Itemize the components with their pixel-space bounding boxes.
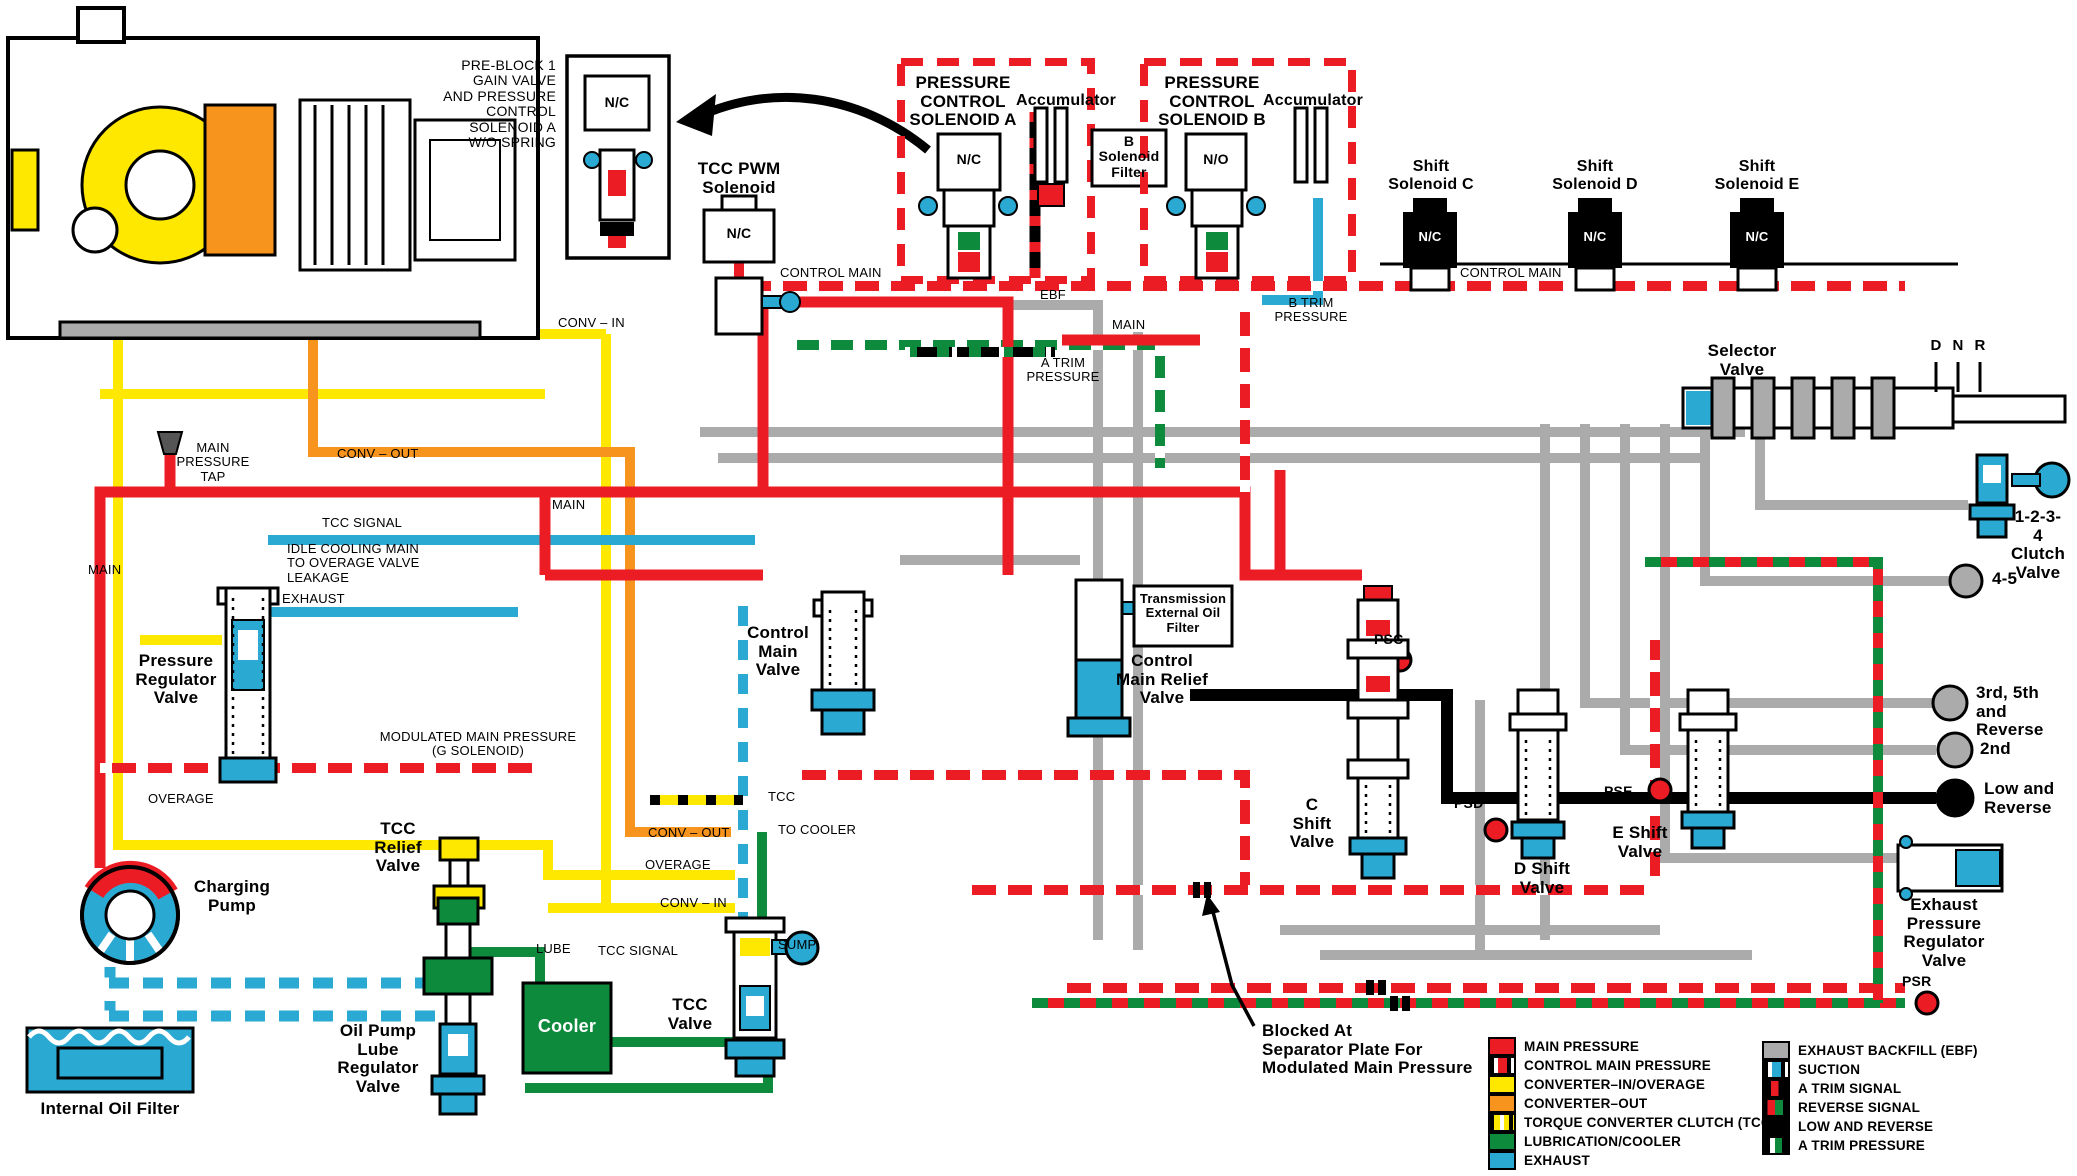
tcc-relief-valve-label: TCC Relief Valve xyxy=(374,820,422,876)
main-label-top: MAIN xyxy=(552,498,585,512)
control-main-label-right: CONTROL MAIN xyxy=(1460,266,1562,280)
legend-item-suction: SUCTION xyxy=(1762,1061,1978,1077)
shift-solenoid-d-label: Shift Solenoid D xyxy=(1552,158,1638,193)
cooler-label: Cooler xyxy=(538,1017,596,1037)
lube-label: LUBE xyxy=(536,942,571,956)
exhaust-swatch xyxy=(1488,1151,1516,1170)
clutch-3rd-5th-reverse-port xyxy=(1933,686,1967,720)
shift-solenoid-c-label: Shift Solenoid C xyxy=(1388,158,1474,193)
a-trim-signal-swatch xyxy=(1762,1079,1790,1098)
reverse-signal-swatch xyxy=(1762,1098,1790,1117)
conv-out-label-mid: CONV – OUT xyxy=(648,826,729,840)
charging-pump xyxy=(82,867,178,963)
third-fifth-reverse-label: 3rd, 5th and Reverse xyxy=(1976,684,2077,740)
pre-block-nc-label: N/C xyxy=(605,95,630,110)
legend-label: EXHAUST xyxy=(1524,1153,1590,1168)
conv-in-label-top: CONV – IN xyxy=(558,316,625,330)
e-shift-valve xyxy=(1680,690,1736,848)
pcs-a-nc-label: N/C xyxy=(957,152,982,167)
a-trim-pressure-swatch xyxy=(1762,1136,1790,1155)
tcc-signal-label-mid: TCC SIGNAL xyxy=(598,944,678,958)
callout-arrow xyxy=(676,94,928,150)
label-4-5: 4-5 xyxy=(1992,570,2017,589)
shift-solenoid-e-label: Shift Solenoid E xyxy=(1715,158,1800,193)
b-solenoid-filter-label: B Solenoid Filter xyxy=(1099,134,1160,180)
clutch-2nd-port xyxy=(1938,733,1972,767)
legend-item-converter-out: CONVERTER–OUT xyxy=(1488,1095,1776,1111)
legend-item-converter-in-overage: CONVERTER–IN/OVERAGE xyxy=(1488,1076,1776,1092)
shift-solenoid-e-nc: N/C xyxy=(1746,230,1769,244)
legend-item-exhaust-backfill: EXHAUST BACKFILL (EBF) xyxy=(1762,1042,1978,1058)
conv-out-label-left: CONV – OUT xyxy=(337,447,418,461)
legend-item-a-trim-pressure: A TRIM PRESSURE xyxy=(1762,1137,1978,1153)
legend-item-low-and-reverse: LOW AND REVERSE xyxy=(1762,1118,1978,1134)
legend-label: REVERSE SIGNAL xyxy=(1798,1100,1920,1115)
selector-r-label: R xyxy=(1974,338,1985,355)
legend-item-lubrication-cooler: LUBRICATION/COOLER xyxy=(1488,1133,1776,1149)
pre-block-inset xyxy=(567,56,669,258)
transmission-external-oil-filter-label: Transmission External Oil Filter xyxy=(1140,592,1226,635)
internal-oil-filter-label: Internal Oil Filter xyxy=(41,1100,180,1119)
suction-swatch xyxy=(1762,1060,1790,1079)
legend-label: EXHAUST BACKFILL (EBF) xyxy=(1798,1043,1978,1058)
c-shift-valve xyxy=(1348,586,1408,878)
legend-item-a-trim-signal: A TRIM SIGNAL xyxy=(1762,1080,1978,1096)
modulated-main-label: MODULATED MAIN PRESSURE (G SOLENOID) xyxy=(380,730,577,759)
shift-solenoid-d-nc: N/C xyxy=(1584,230,1607,244)
psd-label: PSD xyxy=(1454,796,1483,811)
a-trim-pressure-label: A TRIM PRESSURE xyxy=(1026,356,1099,385)
overage-label-mid: OVERAGE xyxy=(645,858,711,872)
torque-converter-clutch-swatch xyxy=(1488,1113,1516,1132)
legend-item-torque-converter-clutch: TORQUE CONVERTER CLUTCH (TCC) xyxy=(1488,1114,1776,1130)
legend-label: A TRIM SIGNAL xyxy=(1798,1081,1901,1096)
pse-switch xyxy=(1649,779,1671,801)
main-pressure-tap-label: MAIN PRESSURE TAP xyxy=(176,441,249,484)
exhaust-pressure-regulator-label: Exhaust Pressure Regulator Valve xyxy=(1903,896,1984,971)
legend-label: CONVERTER–OUT xyxy=(1524,1096,1647,1111)
b-trim-pressure-label: B TRIM PRESSURE xyxy=(1274,296,1347,325)
shift-solenoid-c-nc: N/C xyxy=(1419,230,1442,244)
lubrication-cooler-swatch xyxy=(1488,1132,1516,1151)
control-main-valve-label: Control Main Valve xyxy=(747,624,809,680)
exhaust-label: EXHAUST xyxy=(282,592,345,606)
main-label-mid: MAIN xyxy=(1112,318,1145,332)
legend-column-right: EXHAUST BACKFILL (EBF)SUCTIONA TRIM SIGN… xyxy=(1762,1042,1978,1153)
legend-column-left: MAIN PRESSURECONTROL MAIN PRESSURECONVER… xyxy=(1488,1038,1776,1168)
clutch-low-reverse-port xyxy=(1937,780,1973,816)
legend-item-control-main-pressure: CONTROL MAIN PRESSURE xyxy=(1488,1057,1776,1073)
to-cooler-label: TO COOLER xyxy=(778,823,856,837)
idle-cooling-note: IDLE COOLING MAIN TO OVERAGE VALVE LEAKA… xyxy=(287,542,420,585)
pressure-control-solenoid-b-label: PRESSURE CONTROL SOLENOID B xyxy=(1158,74,1266,130)
internal-oil-filter xyxy=(27,1028,193,1092)
legend-label: CONVERTER–IN/OVERAGE xyxy=(1524,1077,1705,1092)
pre-block-note: PRE-BLOCK 1 GAIN VALVE AND PRESSURE CONT… xyxy=(443,58,556,150)
conv-in-label-mid: CONV – IN xyxy=(660,896,727,910)
accumulator-a-label: Accumulator xyxy=(1016,92,1116,110)
pressure-control-solenoid-a-label: PRESSURE CONTROL SOLENOID A xyxy=(909,74,1016,130)
legend-label: LUBRICATION/COOLER xyxy=(1524,1134,1681,1149)
control-main-valve xyxy=(812,592,874,734)
accumulator-b-label: Accumulator xyxy=(1263,92,1363,110)
main-label-left: MAIN xyxy=(88,563,121,577)
legend-item-exhaust: EXHAUST xyxy=(1488,1152,1776,1168)
tcc-signal-label-left: TCC SIGNAL xyxy=(322,516,402,530)
legend-label: TORQUE CONVERTER CLUTCH (TCC) xyxy=(1524,1115,1776,1130)
clutch-4-5-port xyxy=(1950,565,1982,597)
legend-item-main-pressure: MAIN PRESSURE xyxy=(1488,1038,1776,1054)
legend-label: LOW AND REVERSE xyxy=(1798,1119,1933,1134)
legend-label: SUCTION xyxy=(1798,1062,1860,1077)
psc-label: PSC xyxy=(1374,632,1403,647)
legend-label: A TRIM PRESSURE xyxy=(1798,1138,1925,1153)
control-main-pressure-swatch xyxy=(1488,1056,1516,1075)
pcs-b-no-label: N/O xyxy=(1203,152,1229,167)
selector-valve-label: Selector Valve xyxy=(1708,342,1777,379)
ebf-label: EBF xyxy=(1040,288,1066,302)
converter-in-overage-swatch xyxy=(1488,1075,1516,1094)
pressure-regulator-valve-label: Pressure Regulator Valve xyxy=(135,652,216,708)
tcc-pwm-nc-label: N/C xyxy=(727,226,752,241)
psd-switch xyxy=(1485,819,1507,841)
charging-pump-label: Charging Pump xyxy=(194,878,270,915)
main-pressure-swatch xyxy=(1488,1037,1516,1056)
tcc-pwm-solenoid-label: TCC PWM Solenoid xyxy=(698,160,781,197)
low-and-reverse-label: Low and Reverse xyxy=(1984,780,2054,817)
legend-label: MAIN PRESSURE xyxy=(1524,1039,1639,1054)
d-shift-valve xyxy=(1510,690,1566,858)
selector-d-label: D xyxy=(1930,338,1941,355)
legend-label: CONTROL MAIN PRESSURE xyxy=(1524,1058,1711,1073)
d-shift-valve-label: D Shift Valve xyxy=(1514,860,1570,897)
psr-switch xyxy=(1916,992,1938,1014)
tcc-valve-label: TCC Valve xyxy=(668,996,713,1033)
exhaust-pressure-regulator-valve xyxy=(1898,836,2002,900)
sump-label: SUMP xyxy=(778,938,816,952)
oil-pump-lube-regulator-label: Oil Pump Lube Regulator Valve xyxy=(337,1022,418,1097)
second-label: 2nd xyxy=(1980,740,2011,759)
tcc-port-label: TCC xyxy=(768,790,795,804)
e-shift-valve-label: E Shift Valve xyxy=(1612,824,1667,861)
pse-label: PSE xyxy=(1604,784,1633,799)
control-main-label-left: CONTROL MAIN xyxy=(780,266,882,280)
converter-out-swatch xyxy=(1488,1094,1516,1113)
selector-n-label: N xyxy=(1952,338,1963,355)
legend-item-reverse-signal: REVERSE SIGNAL xyxy=(1762,1099,1978,1115)
c-shift-valve-label: C Shift Valve xyxy=(1290,796,1335,852)
blocked-note: Blocked At Separator Plate For Modulated… xyxy=(1262,1022,1473,1078)
control-main-relief-valve-label: Control Main Relief Valve xyxy=(1116,652,1208,708)
low-and-reverse-swatch xyxy=(1762,1117,1790,1136)
oil-pump-lube-regulator-valve xyxy=(424,898,492,1114)
psr-label: PSR xyxy=(1902,974,1931,989)
clutch-1-2-3-4-label: 1-2-3-4 Clutch Valve xyxy=(2011,508,2065,583)
overage-label-left: OVERAGE xyxy=(148,792,214,806)
hydraulic-schematic: PRE-BLOCK 1 GAIN VALVE AND PRESSURE CONT… xyxy=(0,0,2077,1176)
lube-striped-lines xyxy=(785,345,1160,468)
exhaust-backfill-swatch xyxy=(1762,1041,1790,1060)
pressure-regulator-valve xyxy=(218,588,278,782)
